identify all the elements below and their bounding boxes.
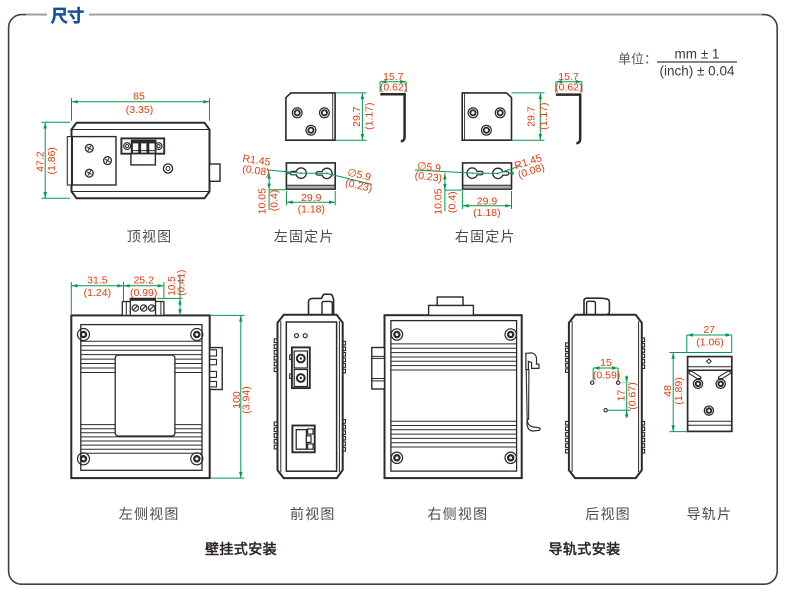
svg-text:(1.06): (1.06) [696,336,723,348]
svg-text:(0.99): (0.99) [130,287,157,299]
svg-text:(1.89): (1.89) [673,377,685,404]
svg-text:29.7: 29.7 [526,106,538,127]
svg-text:47.2: 47.2 [34,151,46,172]
svg-text:10.05: 10.05 [257,188,269,214]
svg-text:(1.17): (1.17) [538,102,550,129]
svg-text:mm ± 1: mm ± 1 [675,47,720,62]
svg-text:右固定片: 右固定片 [455,229,516,245]
svg-text:29.9: 29.9 [301,192,322,204]
svg-text:尺寸: 尺寸 [51,6,84,26]
svg-text:10.05: 10.05 [433,188,445,214]
svg-text:顶视图: 顶视图 [127,229,173,245]
svg-text:29.9: 29.9 [477,195,498,207]
svg-text:(1.86): (1.86) [46,147,58,174]
svg-text:(1.18): (1.18) [473,207,500,219]
svg-text:(0.41): (0.41) [177,270,188,296]
svg-text:(inch) ± 0.04: (inch) ± 0.04 [660,64,735,79]
svg-text:(0.4): (0.4) [269,190,281,212]
svg-text:15: 15 [600,357,612,369]
svg-text:导轨片: 导轨片 [687,506,733,522]
svg-text:(1.18): (1.18) [298,203,325,215]
svg-text:(0.4): (0.4) [447,191,459,213]
svg-text:左侧视图: 左侧视图 [119,506,180,522]
svg-text:29.7: 29.7 [351,106,363,127]
svg-text:(0.62): (0.62) [380,82,407,94]
svg-text:单位：: 单位： [618,52,657,67]
svg-text:左固定片: 左固定片 [274,229,335,245]
svg-text:壁挂式安装: 壁挂式安装 [205,541,278,557]
svg-text:前视图: 前视图 [290,506,336,522]
svg-text:(1.24): (1.24) [84,287,111,299]
svg-text:(1.17): (1.17) [364,102,376,129]
svg-text:85: 85 [133,91,145,103]
svg-text:(3.35): (3.35) [126,104,153,116]
svg-text:(0.62): (0.62) [555,82,582,94]
svg-text:31.5: 31.5 [87,275,108,287]
svg-text:27: 27 [703,324,715,336]
svg-text:(3.94): (3.94) [241,386,253,413]
svg-text:导轨式安装: 导轨式安装 [549,541,622,557]
svg-text:后视图: 后视图 [585,506,631,522]
svg-text:(0.59): (0.59) [593,369,620,381]
svg-text:25.2: 25.2 [133,275,154,287]
svg-text:右侧视图: 右侧视图 [427,506,488,522]
svg-text:(0.67): (0.67) [626,382,638,409]
